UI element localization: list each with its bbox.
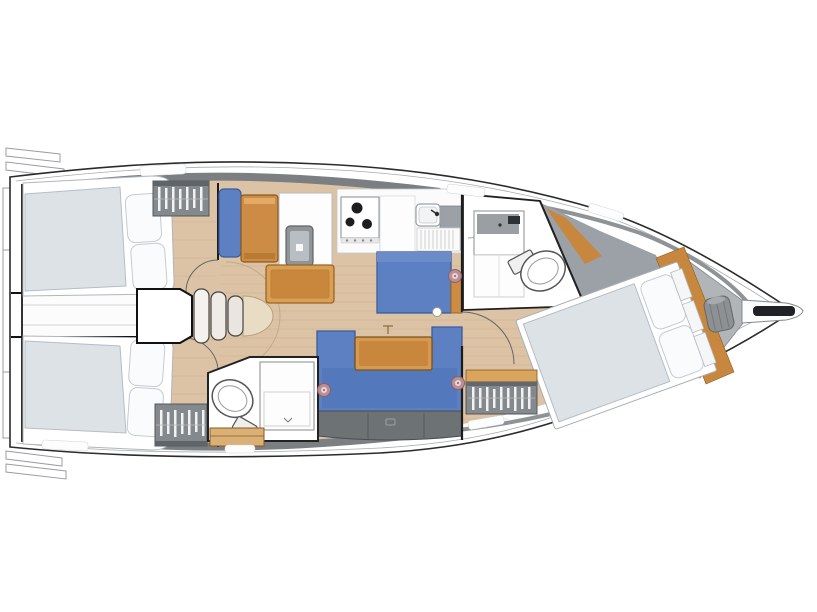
drawer-cabinet bbox=[210, 428, 264, 446]
deck-hatch bbox=[140, 164, 186, 176]
locker-rail-shadow bbox=[466, 382, 537, 386]
hanging-locker bbox=[155, 404, 207, 446]
burner bbox=[352, 203, 363, 214]
stove-top bbox=[341, 197, 379, 238]
stowage-lockers bbox=[318, 411, 462, 440]
cockpit-step bbox=[6, 451, 62, 466]
chart-table bbox=[241, 195, 278, 262]
stove bbox=[341, 197, 379, 243]
fridge-latch bbox=[296, 244, 303, 251]
nav-seat bbox=[219, 189, 241, 257]
engine-box bbox=[22, 292, 137, 338]
chart-table-edge bbox=[244, 198, 275, 204]
locker-rail-shadow bbox=[153, 181, 209, 186]
mattress bbox=[25, 187, 126, 291]
cockpit-step bbox=[6, 148, 60, 162]
table-panel bbox=[359, 341, 428, 366]
burner bbox=[362, 219, 372, 229]
drainboard bbox=[417, 228, 460, 251]
pillow bbox=[128, 339, 165, 387]
burner bbox=[346, 218, 355, 227]
step bbox=[194, 289, 209, 343]
sink bbox=[416, 204, 440, 226]
galley bbox=[337, 189, 462, 253]
stove-knob bbox=[346, 239, 348, 241]
table-leg bbox=[433, 308, 442, 317]
sideboard-panel bbox=[271, 270, 329, 298]
companionway-landing bbox=[137, 289, 192, 343]
speaker-icon bbox=[452, 377, 465, 390]
chart-table-edge bbox=[244, 253, 275, 259]
fridge bbox=[286, 226, 313, 266]
counter-cabinet bbox=[380, 196, 415, 253]
drainboard-tray bbox=[417, 228, 460, 251]
stove-knob bbox=[362, 239, 364, 241]
aft-head bbox=[201, 357, 318, 446]
yacht-floor-plan bbox=[0, 0, 817, 612]
hanging-locker bbox=[153, 181, 209, 216]
deck-hatch bbox=[225, 445, 255, 453]
bowsprit bbox=[742, 300, 803, 323]
locker-rail-shadow bbox=[155, 441, 207, 446]
speaker-icon bbox=[318, 384, 331, 397]
anchor-roller bbox=[753, 306, 795, 316]
settee-seat-cushion bbox=[322, 368, 457, 408]
settee-back-cushion bbox=[377, 252, 451, 262]
faucet-block bbox=[508, 216, 520, 224]
stove-knob bbox=[354, 239, 356, 241]
stove-knob bbox=[370, 239, 372, 241]
cockpit-step bbox=[6, 464, 66, 479]
floor-plan-canvas bbox=[0, 0, 817, 612]
mattress bbox=[25, 341, 126, 433]
vanity-sink bbox=[474, 211, 524, 297]
sink-inner bbox=[419, 207, 437, 223]
drain-dot bbox=[498, 223, 501, 226]
step bbox=[211, 292, 226, 340]
step bbox=[228, 296, 243, 336]
vanity-console bbox=[260, 362, 314, 430]
corridor-locker bbox=[466, 370, 537, 414]
pillow bbox=[130, 243, 167, 291]
settee-armrest bbox=[451, 278, 462, 313]
clothes-hangers bbox=[472, 387, 531, 411]
speaker-icon bbox=[449, 270, 462, 283]
